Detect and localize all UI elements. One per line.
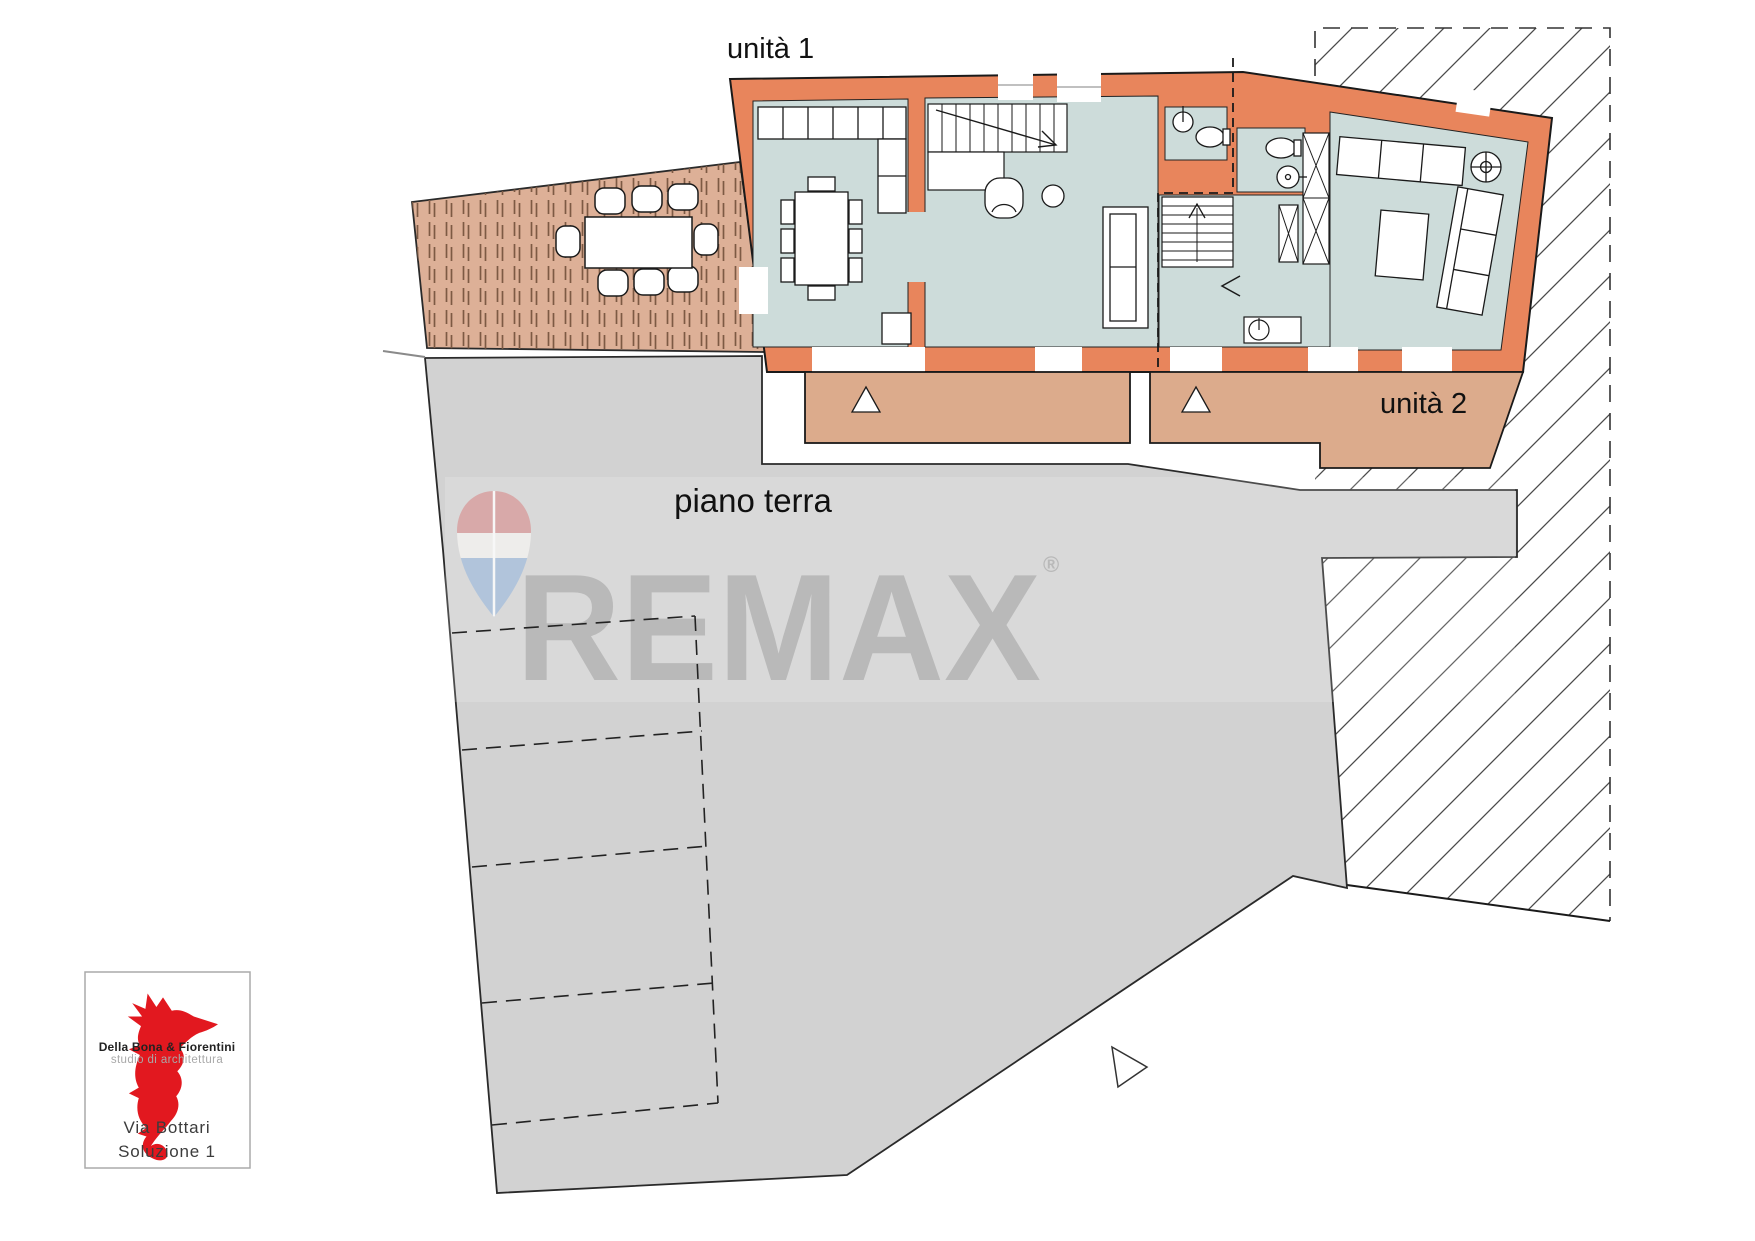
coffee-table [1375,210,1429,280]
logo-street: Via Bottari [124,1118,211,1137]
dining-table [795,192,848,285]
floor-plan-drawing: REMAX ® piano terra [0,0,1755,1241]
kerb-line [383,351,425,357]
unit1-label: unità 1 [727,33,814,65]
remax-brand-text: REMAX [516,543,1041,713]
floor-label: piano terra [674,482,832,519]
site-triangle-icon [1112,1047,1147,1087]
registered-mark: ® [1043,552,1059,577]
radiator [882,313,911,344]
logo-solution: Soluzione 1 [118,1142,216,1161]
armchair [985,178,1023,218]
terrace [412,162,766,352]
kitchen-counter [758,107,906,139]
logo-tagline: studio di architettura [111,1054,224,1066]
toilet-icon [1196,127,1224,147]
unit2-label: unità 2 [1380,388,1467,420]
porch-unit1 [805,372,1130,443]
architect-logo: Della Bona & Fiorentini studio di archit… [85,972,250,1168]
outdoor-table [585,217,692,268]
floor-plan-page: REMAX ® piano terra [0,0,1755,1241]
porch-unit2: unità 2 [1150,372,1523,468]
remax-watermark: REMAX ® [445,477,1515,713]
toilet-icon [1266,138,1296,158]
door-opening [906,212,927,282]
logo-firm-name: Della Bona & Fiorentini [99,1040,236,1054]
side-table [1042,185,1064,207]
